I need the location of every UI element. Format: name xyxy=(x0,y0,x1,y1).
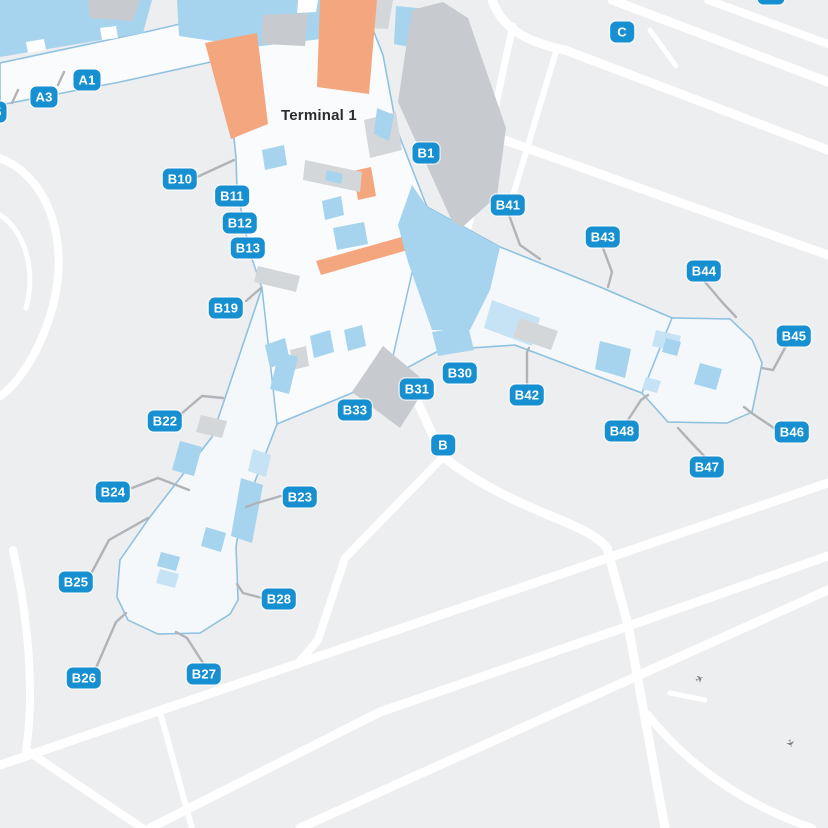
highlight-zone-orange xyxy=(317,0,377,94)
gate-label-A3[interactable]: A3 xyxy=(30,87,57,108)
terminal-block-gray xyxy=(262,13,308,46)
gate-label-C[interactable]: C xyxy=(610,22,634,43)
gate-label-B[interactable]: B xyxy=(431,435,455,456)
gate-label-B33[interactable]: B33 xyxy=(338,400,372,421)
gate-label-B11[interactable]: B11 xyxy=(215,186,249,207)
terminal-notch xyxy=(297,0,318,13)
gate-label-B13[interactable]: B13 xyxy=(231,238,265,259)
gate-label-B26[interactable]: B26 xyxy=(67,668,101,689)
gate-label-B23[interactable]: B23 xyxy=(283,487,317,508)
map-canvas: ✈ ✈ xyxy=(0,0,828,828)
gate-label-B47[interactable]: B47 xyxy=(690,457,724,478)
gate-label-B48[interactable]: B48 xyxy=(605,421,639,442)
gate-label-A1[interactable]: A1 xyxy=(73,70,100,91)
terminal-notch xyxy=(100,26,118,40)
gate-label-B28[interactable]: B28 xyxy=(262,589,296,610)
terminal-title: Terminal 1 xyxy=(281,107,357,124)
gate-label-B25[interactable]: B25 xyxy=(59,572,93,593)
terminal-block-gray xyxy=(88,0,140,21)
gate-label-B44[interactable]: B44 xyxy=(687,261,721,282)
gate-label-B24[interactable]: B24 xyxy=(96,482,130,503)
gate-label-B10[interactable]: B10 xyxy=(163,169,197,190)
gate-label-B12[interactable]: B12 xyxy=(223,213,257,234)
gate-label-B41[interactable]: B41 xyxy=(491,195,525,216)
gate-label-B46[interactable]: B46 xyxy=(775,422,809,443)
gate-label-B19[interactable]: B19 xyxy=(209,298,243,319)
gate-label-B1[interactable]: B1 xyxy=(412,143,439,164)
gate-label-B45[interactable]: B45 xyxy=(777,326,811,347)
gate-label-B43[interactable]: B43 xyxy=(586,227,620,248)
gate-label-A5[interactable]: A5 xyxy=(0,102,7,123)
gate-label-B42[interactable]: B42 xyxy=(510,385,544,406)
gate-label-B27[interactable]: B27 xyxy=(187,664,221,685)
gate-label-C6[interactable]: C6 xyxy=(757,0,784,5)
airport-terminal-map: ✈ ✈ Terminal 1 A5A3A1B10B11B12B13B19B22B… xyxy=(0,0,828,828)
gate-label-B31[interactable]: B31 xyxy=(400,379,434,400)
gate-label-B22[interactable]: B22 xyxy=(148,411,182,432)
gate-label-B30[interactable]: B30 xyxy=(443,363,477,384)
